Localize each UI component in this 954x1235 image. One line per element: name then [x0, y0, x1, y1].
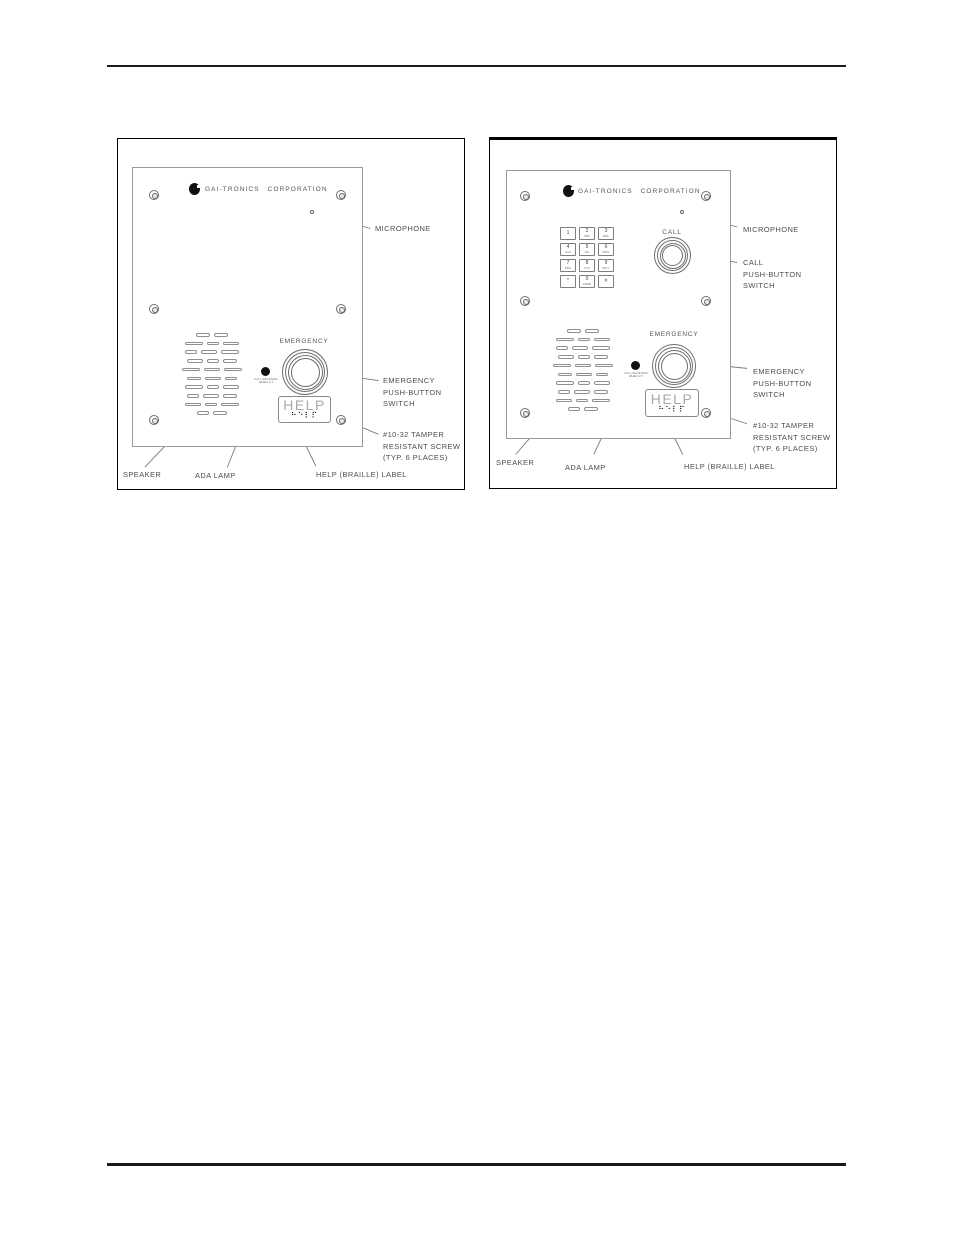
- screw-icon: [149, 190, 159, 200]
- telephone-keypad: 1 2ABC 3DEF 4GHI 5JKL 6MNO 7PRS 8TUV 9WX…: [560, 227, 614, 288]
- callout-tamper-screw: #10-32 TAMPER RESISTANT SCREW (TYP. 6 PL…: [753, 420, 830, 455]
- figure-right-panel-drawing: GAI-TRONICS CORPORATION 1 2ABC 3DEF 4GHI…: [489, 137, 837, 489]
- screw-icon: [149, 415, 159, 425]
- ada-lamp-caption: CALL RECEIVED WHEN LIT: [247, 378, 285, 384]
- screw-icon: [701, 191, 711, 201]
- callout-microphone: MICROPHONE: [375, 223, 431, 235]
- keypad-key: 6MNO: [598, 243, 614, 256]
- emergency-button-caption: EMERGENCY: [637, 331, 711, 338]
- keypad-key: 8TUV: [579, 259, 595, 272]
- callout-speaker: SPEAKER: [123, 469, 161, 481]
- callout-call-switch: CALL PUSH-BUTTON SWITCH: [743, 257, 801, 292]
- callout-microphone: MICROPHONE: [743, 224, 799, 236]
- callout-ada-lamp: ADA LAMP: [565, 462, 606, 474]
- screw-icon: [520, 408, 530, 418]
- screw-icon: [701, 296, 711, 306]
- callout-help-label: HELP (BRAILLE) LABEL: [684, 461, 775, 473]
- callout-emergency-switch: EMERGENCY PUSH-BUTTON SWITCH: [753, 366, 811, 401]
- keypad-key: 0OPER: [579, 275, 595, 288]
- keypad-key: 4GHI: [560, 243, 576, 256]
- callout-help-label: HELP (BRAILLE) LABEL: [316, 469, 407, 481]
- call-push-button: [654, 237, 691, 274]
- keypad-key: #: [598, 275, 614, 288]
- ada-lamp-caption: CALL RECEIVED WHEN LIT: [617, 372, 655, 378]
- callout-ada-lamp: ADA LAMP: [195, 470, 236, 482]
- emergency-push-button: [282, 349, 328, 395]
- screw-icon: [336, 415, 346, 425]
- phone-faceplate: GAI-TRONICS CORPORATION EMERGENCY: [132, 167, 363, 447]
- header-rule: [107, 65, 846, 67]
- callout-emergency-switch: EMERGENCY PUSH-BUTTON SWITCH: [383, 375, 441, 410]
- keypad-key: 1: [560, 227, 576, 240]
- callout-tamper-screw: #10-32 TAMPER RESISTANT SCREW (TYP. 6 PL…: [383, 429, 460, 464]
- call-button-caption: CALL: [641, 229, 703, 236]
- footer-rule: [107, 1163, 846, 1166]
- screw-icon: [520, 191, 530, 201]
- ada-lamp: [261, 367, 270, 376]
- brand-text: GAI-TRONICS CORPORATION: [205, 186, 328, 193]
- keypad-key: 3DEF: [598, 227, 614, 240]
- callout-speaker: SPEAKER: [496, 457, 534, 469]
- keypad-key: 7PRS: [560, 259, 576, 272]
- help-braille-label: HELP ⠓⠑⠇⠏: [278, 396, 331, 423]
- screw-icon: [336, 190, 346, 200]
- manual-page: GAI-TRONICS CORPORATION EMERGENCY: [0, 0, 954, 1235]
- speaker-grille: [550, 329, 615, 411]
- microphone-hole: [310, 210, 314, 214]
- keypad-key: 9WXY: [598, 259, 614, 272]
- gai-tronics-logo-icon: [563, 185, 574, 197]
- keypad-key: *: [560, 275, 576, 288]
- microphone-hole: [680, 210, 684, 214]
- braille-dots: ⠓⠑⠇⠏: [658, 406, 685, 414]
- keypad-key: 2ABC: [579, 227, 595, 240]
- brand-text: GAI-TRONICS CORPORATION: [578, 188, 701, 195]
- gai-tronics-logo-icon: [189, 183, 200, 195]
- keypad-key: 5JKL: [579, 243, 595, 256]
- help-braille-label: HELP ⠓⠑⠇⠏: [645, 389, 699, 417]
- ada-lamp: [631, 361, 640, 370]
- braille-dots: ⠓⠑⠇⠏: [291, 412, 318, 420]
- figure-left-panel-drawing: GAI-TRONICS CORPORATION EMERGENCY: [117, 138, 465, 490]
- emergency-button-caption: EMERGENCY: [267, 338, 341, 345]
- speaker-grille: [180, 333, 244, 415]
- phone-faceplate: GAI-TRONICS CORPORATION 1 2ABC 3DEF 4GHI…: [506, 170, 731, 439]
- emergency-push-button: [652, 344, 696, 388]
- help-text: HELP: [651, 393, 694, 406]
- screw-icon: [520, 296, 530, 306]
- screw-icon: [149, 304, 159, 314]
- screw-icon: [336, 304, 346, 314]
- screw-icon: [701, 408, 711, 418]
